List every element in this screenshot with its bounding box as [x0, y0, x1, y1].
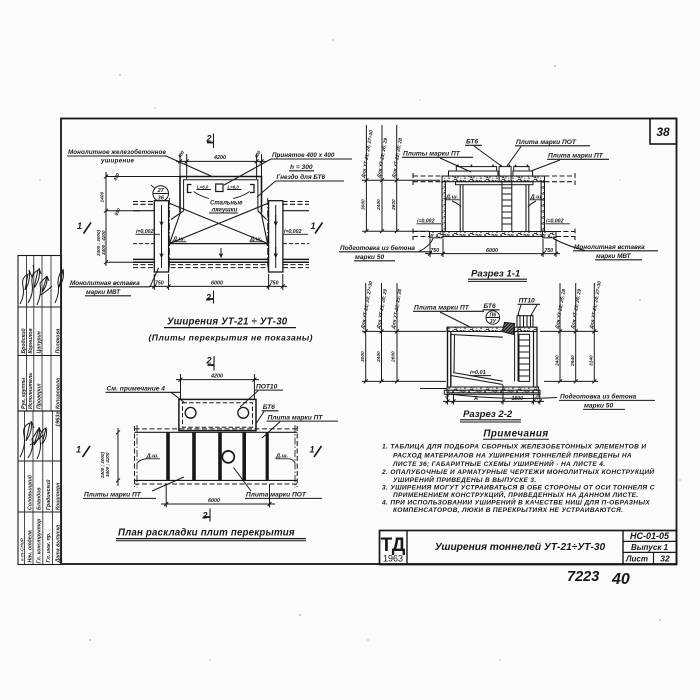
- svg-text:Рук. группы: Рук. группы: [21, 377, 27, 409]
- svg-text:Плита марки ПТ: Плита марки ПТ: [414, 305, 470, 312]
- svg-text:БТ6: БТ6: [484, 303, 496, 310]
- svg-text:Бландов: Бландов: [37, 488, 43, 511]
- svg-text:1: 1: [77, 221, 82, 231]
- svg-text:к-т-СНиР: к-т-СНиР: [20, 537, 26, 561]
- svg-text:Монолитное железобетонное: Монолитное железобетонное: [68, 149, 167, 156]
- svg-text:h = 300: h = 300: [290, 164, 313, 171]
- svg-text:2: 2: [205, 293, 211, 303]
- svg-text:Разрез 1-1: Разрез 1-1: [471, 269, 520, 280]
- svg-text:6000: 6000: [208, 498, 220, 504]
- svg-text:L=6,0: L=6,0: [228, 185, 240, 190]
- svg-text:Плита марки ПТ: Плита марки ПТ: [268, 414, 324, 421]
- svg-text:Копировала: Копировала: [56, 378, 62, 409]
- svg-text:УШИРЕНИЙ ПРИВЕДЕНЫ В ВЫПУСК: УШИРЕНИЙ ПРИВЕДЕНЫ В ВЫПУСКЕ 3.: [393, 475, 537, 484]
- svg-text:Плиты марки ПТ: Плиты марки ПТ: [403, 151, 461, 158]
- svg-text:Дата выпуска: Дата выпуска: [56, 525, 62, 564]
- svg-text:750: 750: [155, 281, 164, 287]
- svg-text:РАСХОД МАТЕРИАЛОВ НА УШИРЕН: РАСХОД МАТЕРИАЛОВ НА УШИРЕНИЯ ТОННЕЛЕЙ П…: [393, 451, 632, 460]
- svg-text:3000: 3000: [361, 199, 367, 210]
- svg-text:Подготовка из бетона: Подготовка из бетона: [340, 244, 415, 252]
- svg-text:КОМПЕНСАТОРОВ, ЛЮКИ В ПЕРЕК: КОМПЕНСАТОРОВ, ЛЮКИ В ПЕРЕКРЫТИЯХ НЕ УСТ…: [393, 507, 623, 514]
- svg-text:ПТ10: ПТ10: [519, 298, 535, 305]
- svg-text:Плита марки ПОТ: Плита марки ПОТ: [246, 492, 307, 499]
- svg-text:Разрез 2-2: Разрез 2-2: [463, 409, 513, 420]
- svg-text:750: 750: [545, 248, 554, 254]
- svg-text:L=6,0: L=6,0: [197, 185, 209, 190]
- svg-text:1: 1: [310, 445, 315, 455]
- svg-text:Кошутерн: Кошутерн: [56, 482, 62, 510]
- svg-text:4200: 4200: [213, 155, 226, 161]
- svg-text:(Плиты перекрытия не показа: (Плиты перекрытия не показаны): [149, 333, 314, 343]
- svg-text:ПРИМЕНЕНИЕМ КОНСТРУКЦИЙ, ПРИВ: ПРИМЕНЕНИЕМ КОНСТРУКЦИЙ, ПРИВЕДЕННЫХ НА …: [393, 490, 639, 499]
- svg-text:Уширения тоннелей УТ-21÷УТ-30: Уширения тоннелей УТ-21÷УТ-30: [435, 542, 606, 553]
- svg-text:Цапурин: Цапурин: [36, 330, 42, 353]
- svg-text:Уширения УТ-21 ÷ УТ-30: Уширения УТ-21 ÷ УТ-30: [167, 317, 288, 328]
- svg-text:2600: 2600: [391, 199, 397, 211]
- svg-text:марки МВТ: марки МВТ: [596, 253, 632, 260]
- svg-text:Корнилов: Корнилов: [28, 328, 34, 353]
- svg-text:Подготовка из бетона: Подготовка из бетона: [560, 393, 637, 401]
- svg-text:2400: 2400: [554, 355, 560, 367]
- svg-text:НС-01-05: НС-01-05: [630, 531, 670, 541]
- svg-text:Градинский: Градинский: [45, 479, 52, 510]
- svg-text:27: 27: [157, 188, 165, 194]
- svg-text:4200: 4200: [210, 373, 223, 379]
- svg-text:1963г.: 1963г.: [56, 410, 62, 427]
- svg-text:А: А: [473, 396, 478, 402]
- svg-text:3140: 3140: [589, 355, 595, 366]
- svg-text:Монолитная вставка: Монолитная вставка: [70, 280, 140, 287]
- svg-text:Гл. конструктор: Гл. конструктор: [37, 519, 43, 564]
- svg-text:ЛИСТЕ 36; ГАБАРИТНЫЕ СХЕМЫ: ЛИСТЕ 36; ГАБАРИТНЫЕ СХЕМЫ УШИРЕНИЙ - НА…: [392, 459, 605, 468]
- svg-text:Стальные: Стальные: [210, 201, 243, 207]
- svg-text:2. ОПАЛУБОЧНЫЕ И АРМАТУРНЫЕ: 2. ОПАЛУБОЧНЫЕ И АРМАТУРНЫЕ ЧЕРТЕЖИ МОНО…: [381, 467, 654, 476]
- svg-text:Плиты марки ПТ: Плиты марки ПТ: [84, 492, 142, 499]
- svg-text:Нач. отдела: Нач. отдела: [28, 530, 34, 562]
- svg-text:БТ6: БТ6: [466, 139, 478, 146]
- svg-text:Примечания: Примечания: [483, 429, 548, 440]
- svg-text:Бродский: Бродский: [20, 328, 27, 354]
- svg-text:БТ6: БТ6: [263, 404, 275, 411]
- svg-text:марки 50: марки 50: [584, 403, 613, 410]
- svg-text:1: 1: [311, 221, 316, 231]
- svg-text:уширение: уширение: [100, 158, 135, 165]
- svg-text:2400: 2400: [376, 351, 382, 363]
- svg-text:Лист: Лист: [625, 555, 648, 564]
- svg-text:П6: П6: [490, 312, 497, 318]
- svg-text:2400: 2400: [376, 199, 382, 211]
- svg-text:1400: 1400: [100, 191, 106, 202]
- svg-text:2: 2: [206, 356, 212, 366]
- svg-text:Плита марки ПТ: Плита марки ПТ: [548, 153, 604, 160]
- svg-text:38: 38: [656, 125, 670, 139]
- svg-text:32: 32: [660, 554, 670, 564]
- svg-text:Полякова: Полякова: [56, 328, 62, 353]
- svg-text:3400 ; 4200: 3400 ; 4200: [101, 230, 106, 255]
- svg-text:1: 1: [76, 445, 81, 455]
- svg-text:Исполнитель: Исполнитель: [28, 373, 34, 409]
- svg-text:1. ТАБЛИЦА ДЛЯ ПОДБОРА СБОР: 1. ТАБЛИЦА ДЛЯ ПОДБОРА СБОРНЫХ ЖЕЛЕЗОБЕТ…: [382, 444, 646, 451]
- svg-text:марки МВТ: марки МВТ: [86, 289, 121, 296]
- svg-text:3000: 3000: [360, 351, 366, 362]
- svg-text:750: 750: [431, 248, 440, 254]
- svg-text:2: 2: [202, 511, 208, 521]
- svg-text:План раскладки плит перекры: План раскладки плит перекрытия: [118, 528, 295, 539]
- svg-text:3У: 3У: [490, 319, 497, 325]
- svg-text:3400 ; 4200: 3400 ; 4200: [105, 452, 110, 477]
- svg-text:1963: 1963: [383, 554, 403, 564]
- svg-text:См. примечание 4: См. примечание 4: [107, 386, 166, 393]
- svg-text:750: 750: [270, 281, 279, 287]
- svg-text:40: 40: [611, 571, 630, 588]
- svg-text:7223: 7223: [567, 569, 599, 585]
- svg-text:6000: 6000: [486, 248, 498, 254]
- svg-text:1800: 1800: [512, 396, 524, 402]
- svg-text:2600: 2600: [391, 351, 397, 363]
- svg-text:Выпуск 1: Выпуск 1: [631, 543, 669, 552]
- svg-text:Гнездо для БТ6: Гнездо для БТ6: [277, 173, 326, 181]
- svg-text:4. ПРИ ИСПОЛЬЗОВАНИИ УШИРЕНИ: 4. ПРИ ИСПОЛЬЗОВАНИИ УШИРЕНИЙ В КАЧЕСТВЕ…: [381, 498, 650, 507]
- svg-text:Проверил: Проверил: [36, 383, 42, 409]
- svg-text:Принятое 400 х 400: Принятое 400 х 400: [272, 152, 335, 159]
- svg-text:марки 50: марки 50: [355, 254, 384, 261]
- svg-text:ПОТ10: ПОТ10: [256, 383, 278, 390]
- svg-text:Соловьицкий: Соловьицкий: [27, 474, 34, 510]
- svg-text:2940: 2940: [570, 355, 576, 367]
- svg-text:6000: 6000: [211, 281, 223, 287]
- svg-text:Плита марки ПОТ: Плита марки ПОТ: [516, 139, 577, 146]
- svg-text:Гл. инж. пр.: Гл. инж. пр.: [46, 533, 52, 563]
- svg-text:3. УШИРЕНИЯ МОГУТ УСТРАИВАТЬ: 3. УШИРЕНИЯ МОГУТ УСТРАИВАТЬСЯ В ОБЕ СТО…: [382, 485, 655, 492]
